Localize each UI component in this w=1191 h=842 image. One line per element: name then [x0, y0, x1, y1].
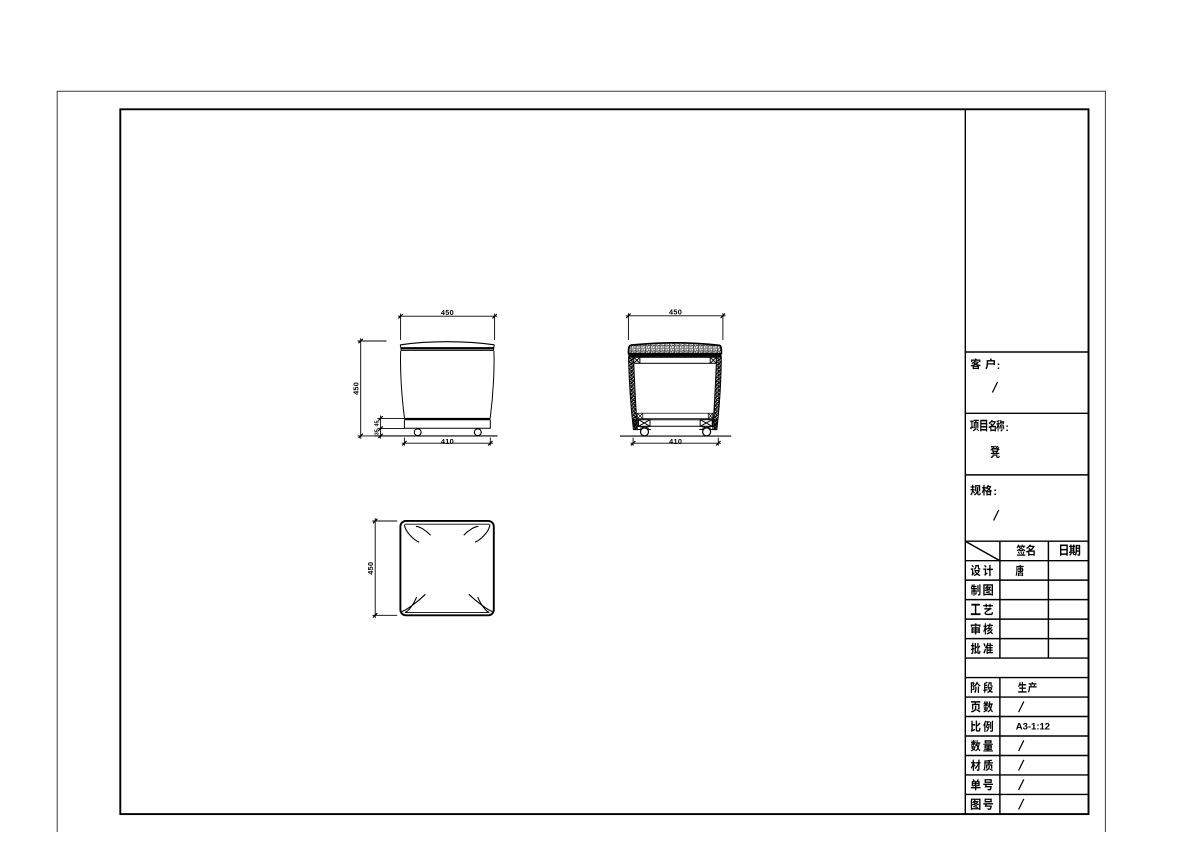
svg-text:45: 45 [374, 421, 380, 427]
svg-text:A3-1:12: A3-1:12 [1016, 722, 1050, 733]
svg-text:450: 450 [351, 382, 360, 395]
svg-text:35: 35 [374, 429, 380, 435]
svg-text:450: 450 [669, 308, 682, 317]
svg-text:450: 450 [441, 308, 454, 317]
svg-text::: : [997, 360, 1001, 372]
svg-text:410: 410 [441, 437, 454, 446]
svg-text:450: 450 [366, 562, 375, 575]
svg-text::: : [1005, 422, 1009, 434]
svg-text::: : [993, 486, 997, 498]
svg-text:410: 410 [669, 437, 682, 446]
